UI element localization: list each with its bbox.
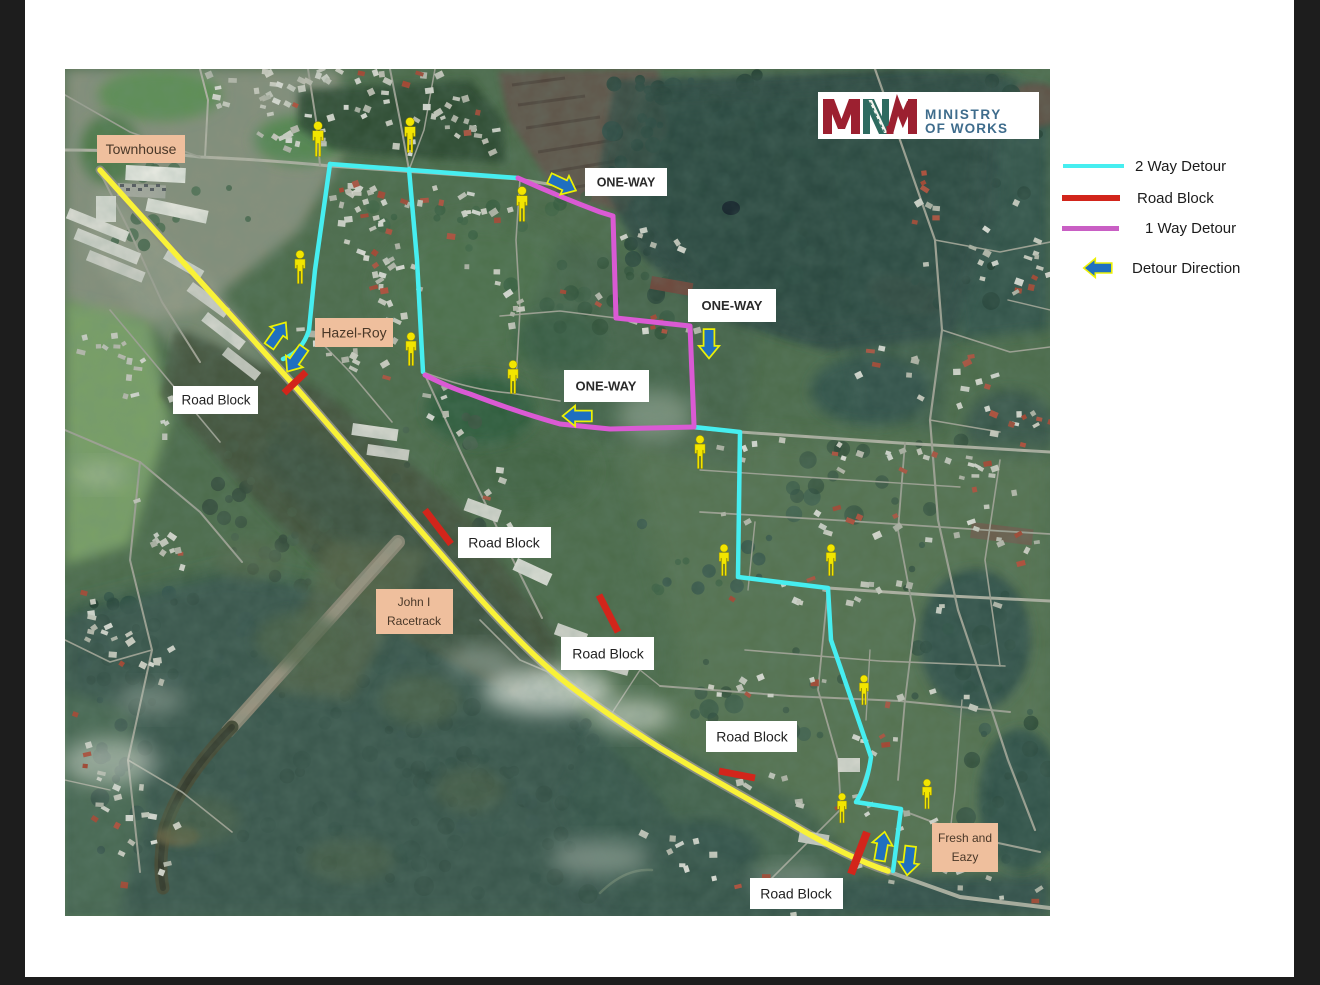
svg-text:Fresh and: Fresh and <box>938 831 992 845</box>
svg-text:Road Block: Road Block <box>181 393 250 408</box>
svg-text:Road Block: Road Block <box>468 534 541 550</box>
svg-text:MINISTRY: MINISTRY <box>925 107 1002 122</box>
svg-text:Hazel-Roy: Hazel-Roy <box>321 324 386 340</box>
svg-text:ONE-WAY: ONE-WAY <box>702 298 763 313</box>
svg-text:Townhouse: Townhouse <box>106 141 177 157</box>
svg-text:ONE-WAY: ONE-WAY <box>597 175 656 189</box>
svg-text:Eazy: Eazy <box>952 850 979 864</box>
svg-text:Racetrack: Racetrack <box>387 614 442 628</box>
svg-text:Road Block: Road Block <box>760 885 833 901</box>
svg-text:Road Block: Road Block <box>572 645 645 661</box>
svg-text:OF WORKS: OF WORKS <box>925 121 1008 136</box>
svg-text:Road Block: Road Block <box>716 728 789 744</box>
svg-text:ONE-WAY: ONE-WAY <box>576 379 637 394</box>
svg-text:John I: John I <box>398 595 431 609</box>
